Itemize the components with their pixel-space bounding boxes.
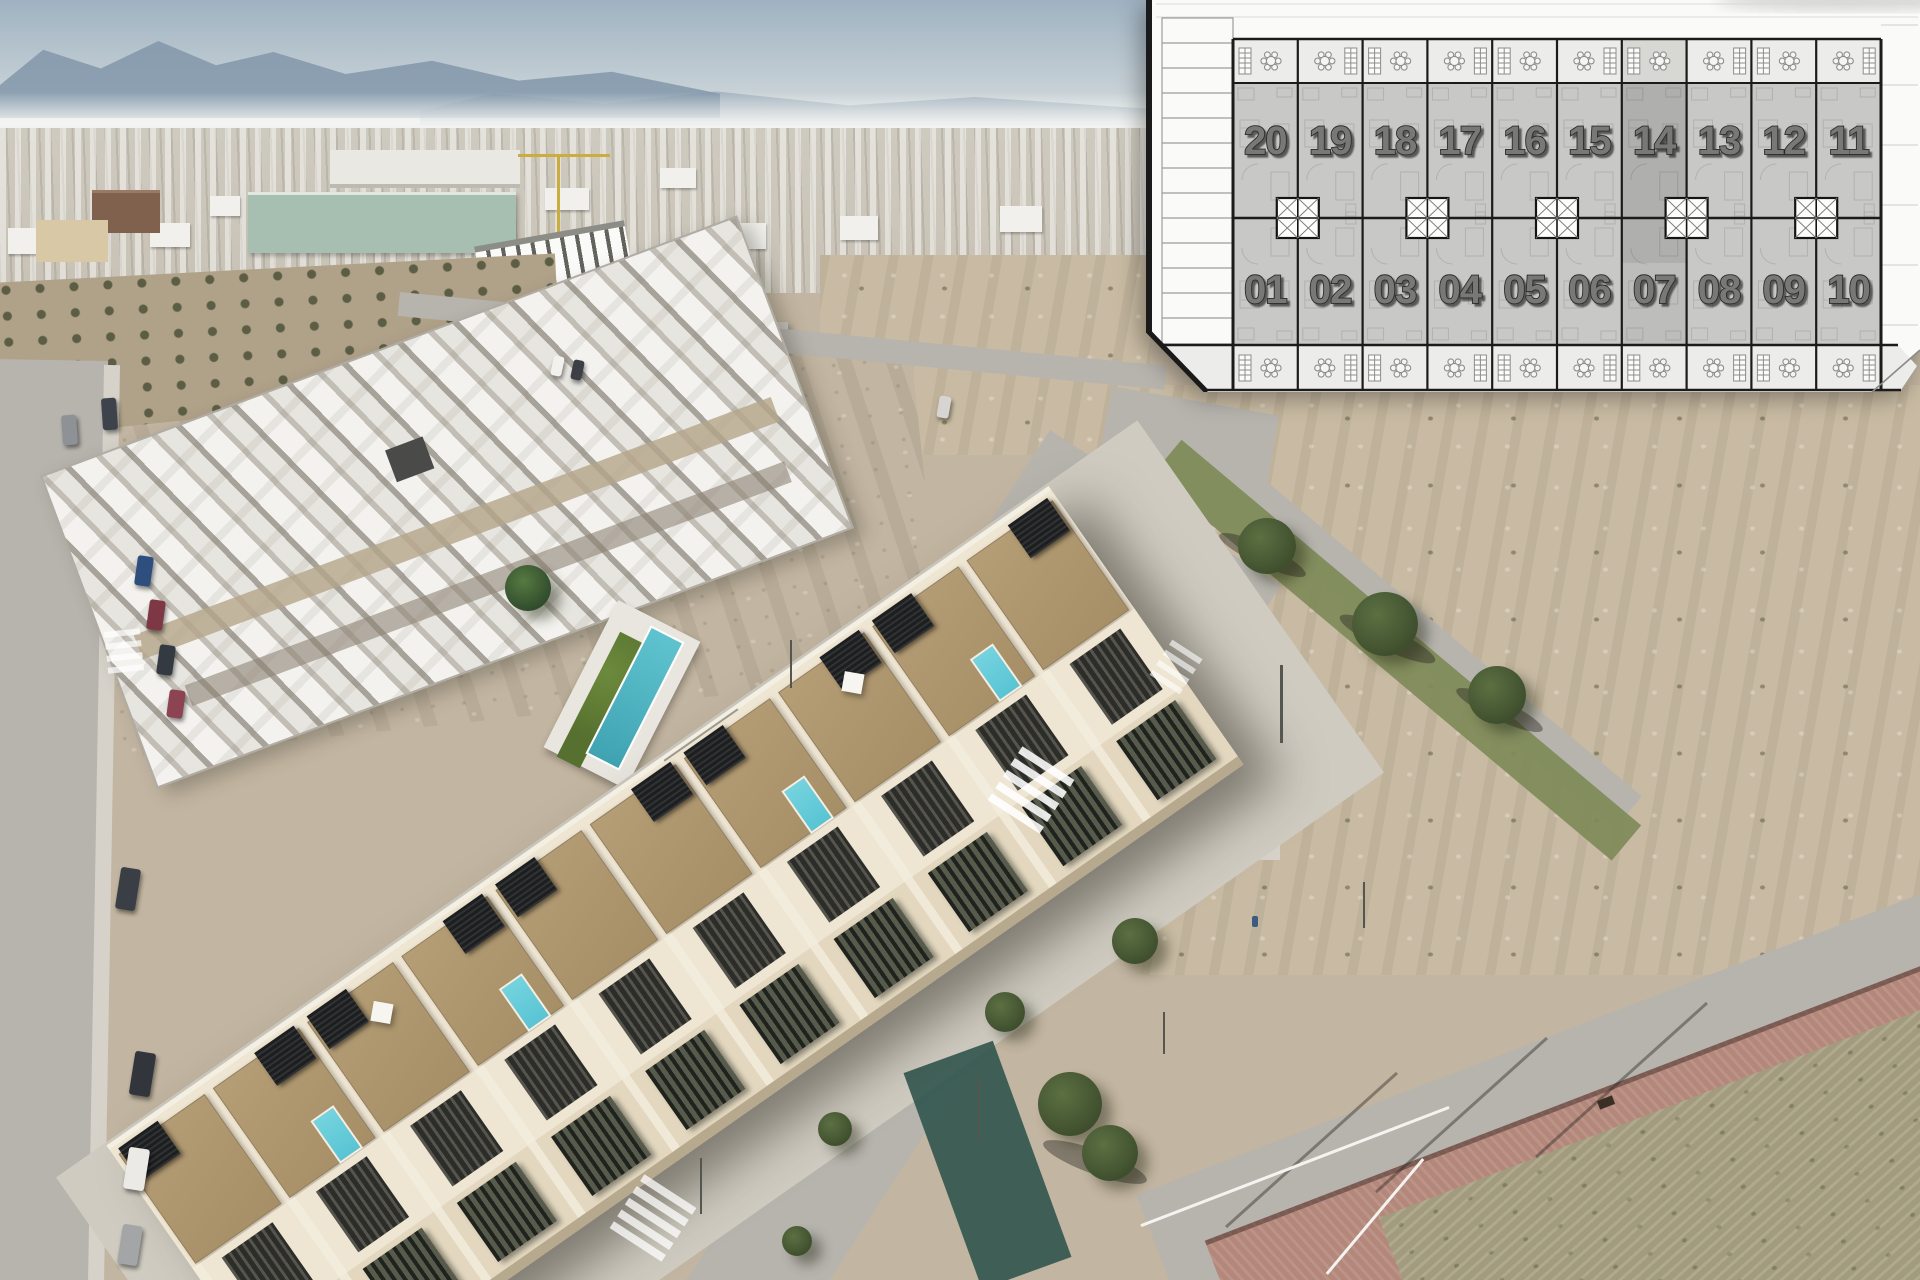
white-building bbox=[660, 168, 696, 188]
parasol bbox=[841, 671, 864, 694]
car bbox=[61, 415, 78, 446]
tree bbox=[1038, 1072, 1102, 1136]
unit-number: 01 bbox=[1244, 268, 1287, 312]
unit-number: 15 bbox=[1568, 119, 1611, 163]
unit-number: 08 bbox=[1698, 268, 1741, 312]
warehouse-white bbox=[330, 150, 520, 188]
unit-number: 16 bbox=[1503, 119, 1546, 163]
unit-number: 05 bbox=[1503, 268, 1546, 312]
parasol bbox=[370, 1001, 393, 1024]
warehouse-green-roof bbox=[248, 192, 516, 253]
tree bbox=[985, 992, 1025, 1032]
white-building bbox=[210, 196, 240, 216]
dark-roof-terrace bbox=[385, 436, 434, 482]
tree bbox=[818, 1112, 852, 1146]
unit-number: 18 bbox=[1374, 119, 1417, 163]
car bbox=[101, 398, 118, 431]
pedestrian bbox=[1252, 916, 1258, 927]
site-plan-overlay: 20 19 18 17 16 15 14 13 12 11 01 02 03 0… bbox=[1146, 0, 1920, 392]
unit-number: 07 bbox=[1633, 268, 1676, 312]
streetlight bbox=[1163, 1012, 1165, 1054]
cream-building bbox=[36, 220, 108, 262]
unit-number: 14 bbox=[1633, 119, 1677, 163]
unit-number: 11 bbox=[1828, 119, 1869, 163]
tree bbox=[782, 1226, 812, 1256]
unit-number: 19 bbox=[1309, 119, 1352, 163]
tree bbox=[1112, 918, 1158, 964]
tree bbox=[1082, 1125, 1138, 1181]
white-building bbox=[545, 188, 589, 210]
unit-number: 02 bbox=[1309, 268, 1352, 312]
streetlight bbox=[978, 1078, 980, 1140]
streetlight bbox=[700, 1158, 702, 1214]
crane-mast bbox=[557, 154, 560, 238]
unit-number: 06 bbox=[1568, 268, 1611, 312]
tree bbox=[1352, 592, 1418, 656]
panel-left-border bbox=[1146, 0, 1152, 333]
streetlight bbox=[1363, 882, 1365, 928]
unit-number: 09 bbox=[1763, 268, 1806, 312]
unit-number: 03 bbox=[1374, 268, 1417, 312]
palm-tree bbox=[505, 565, 551, 611]
unit-number: 13 bbox=[1698, 119, 1741, 163]
white-building bbox=[840, 216, 878, 240]
streetlight bbox=[790, 640, 792, 688]
white-building bbox=[1000, 206, 1042, 232]
field-light-mast bbox=[1280, 665, 1283, 743]
aerial-photo: 20 19 18 17 16 15 14 13 12 11 01 02 03 0… bbox=[0, 0, 1920, 1280]
crosswalk-left bbox=[104, 628, 144, 674]
garden-patch bbox=[904, 1041, 1072, 1280]
car-dark bbox=[115, 867, 141, 912]
tree bbox=[1238, 518, 1296, 574]
car-dark bbox=[129, 1051, 157, 1098]
unit-number: 17 bbox=[1439, 119, 1482, 163]
unit-number: 12 bbox=[1763, 119, 1806, 163]
tree bbox=[1468, 666, 1526, 724]
unit-number: 20 bbox=[1244, 119, 1287, 163]
crane-arm bbox=[518, 154, 610, 157]
unit-number: 04 bbox=[1439, 268, 1483, 312]
unit-number: 10 bbox=[1827, 268, 1870, 312]
